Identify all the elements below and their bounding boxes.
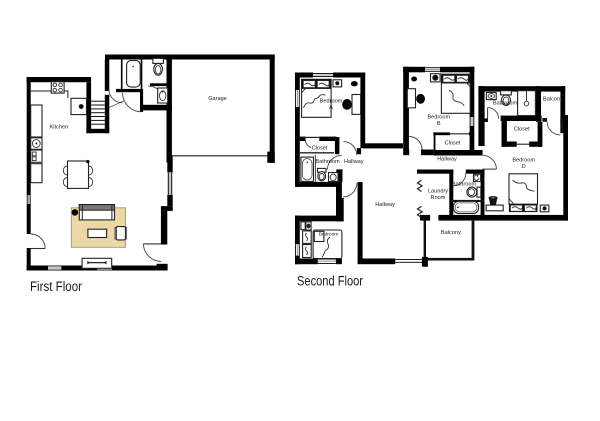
svg-text:Hallway: Hallway [375,202,395,208]
svg-text:Garage: Garage [208,96,227,102]
svg-text:Bedroom: Bedroom [427,115,450,121]
svg-text:Kitchen: Kitchen [50,125,69,131]
svg-text:Bathroom: Bathroom [315,159,340,165]
svg-text:Balcony: Balcony [441,230,461,236]
svg-text:Closet: Closet [514,127,530,133]
svg-text:Bedroom: Bedroom [320,99,343,105]
svg-text:Closet: Closet [445,141,461,147]
svg-text:B: B [437,121,441,127]
svg-text:Hallway: Hallway [344,159,364,165]
svg-text:Laundry: Laundry [428,189,448,195]
svg-text:Closet: Closet [312,146,328,152]
svg-text:Bathroom: Bathroom [452,182,477,188]
svg-text:Hallway: Hallway [437,156,457,162]
svg-text:Second Floor: Second Floor [297,274,363,289]
svg-text:Bedroom: Bedroom [512,158,535,164]
svg-text:First Floor: First Floor [30,279,82,294]
svg-text:Balcony: Balcony [543,97,563,103]
svg-text:Bathroom: Bathroom [493,100,518,106]
svg-text:Bedroom: Bedroom [319,232,338,238]
svg-text:D: D [522,164,526,170]
svg-text:A: A [329,105,333,111]
svg-text:Room: Room [431,195,446,201]
